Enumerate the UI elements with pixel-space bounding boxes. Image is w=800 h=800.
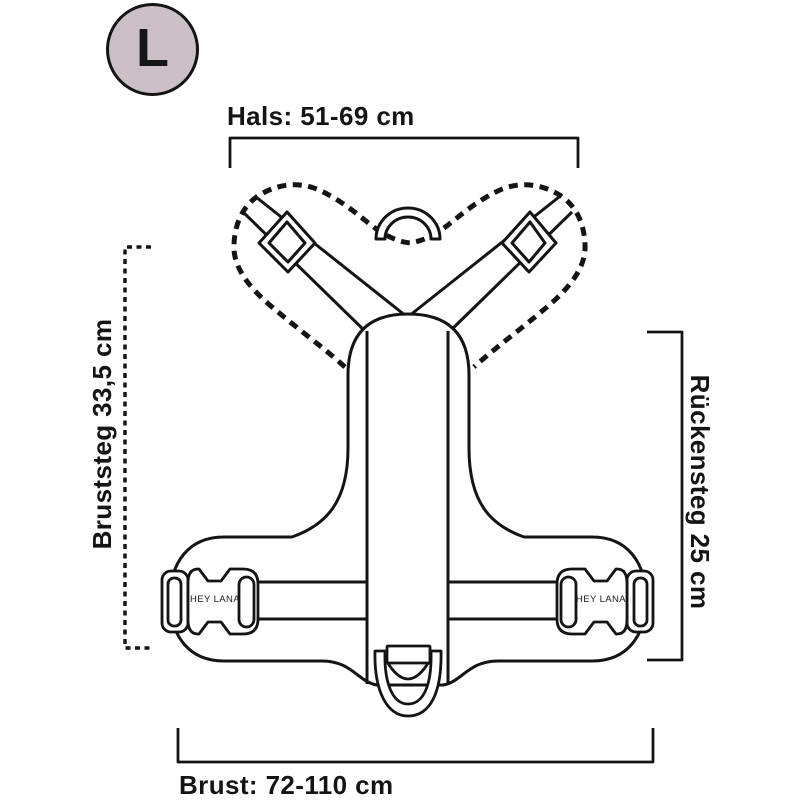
chest-strap-measurement-label: Bruststeg 33,5 cm: [87, 314, 117, 554]
brand-label-right-buckle: HEY LANA: [572, 592, 630, 608]
size-badge-letter: L: [136, 17, 169, 79]
right-strap-lower-edge: [447, 212, 572, 334]
chest-strap-bracket-dashed: [125, 247, 151, 648]
chest-girth-bracket: [178, 728, 653, 762]
left-buckle-ring-slot: [168, 578, 181, 626]
top-d-ring: [376, 208, 440, 239]
size-badge: L: [106, 3, 199, 96]
bottom-d-ring-tab: [387, 646, 430, 663]
left-strap-slider: [259, 212, 315, 272]
right-buckle-ring-slot: [634, 578, 647, 626]
neck-bracket: [230, 138, 578, 168]
brand-label-left-buckle: HEY LANA: [186, 592, 244, 608]
harness-size-diagram: L Hals: 51-69 cm Brust: 72-110 cm Brusts…: [0, 0, 800, 800]
back-strap-measurement-label: Rückensteg 25 cm: [685, 372, 715, 612]
right-strap-slider: [502, 212, 556, 272]
neck-measurement-label: Hals: 51-69 cm: [227, 101, 415, 132]
chest-girth-measurement-label: Brust: 72-110 cm: [179, 770, 394, 800]
